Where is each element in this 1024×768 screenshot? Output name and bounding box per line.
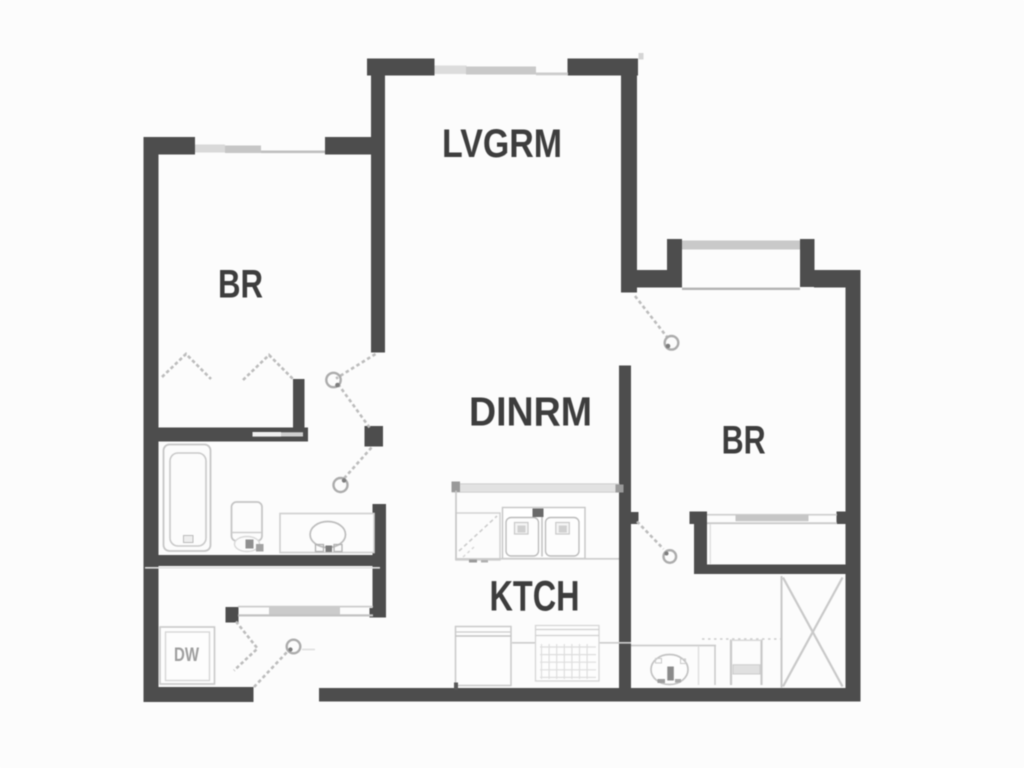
svg-text:LVGRM: LVGRM bbox=[442, 122, 562, 166]
svg-text:BR: BR bbox=[218, 263, 263, 307]
svg-text:KTCH: KTCH bbox=[490, 573, 580, 621]
svg-text:BR: BR bbox=[722, 419, 766, 463]
svg-text:DW: DW bbox=[174, 645, 199, 666]
svg-text:DINRM: DINRM bbox=[469, 389, 592, 435]
